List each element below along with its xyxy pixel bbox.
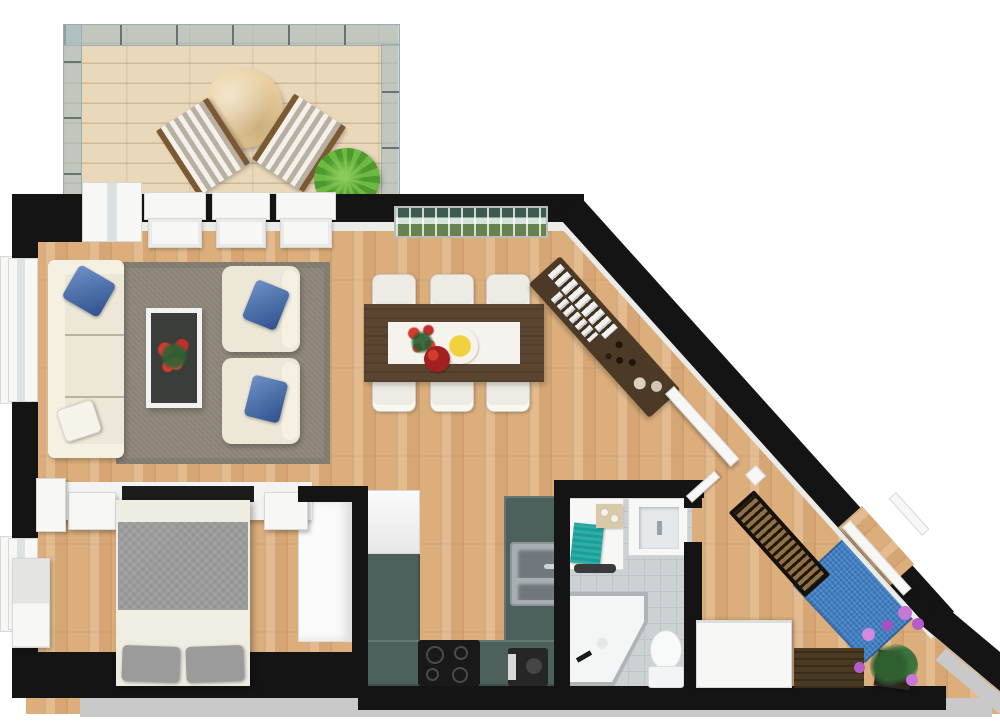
candle bbox=[610, 514, 619, 523]
orchid-bloom bbox=[862, 628, 875, 641]
shower-handle bbox=[576, 650, 592, 662]
orchid-bloom bbox=[912, 618, 924, 630]
patio-door bbox=[82, 182, 142, 242]
decor-knob bbox=[627, 358, 637, 368]
sofa-armrest-bottom bbox=[48, 444, 124, 458]
orchid-bloom bbox=[898, 606, 912, 620]
vanity-drawer-slot bbox=[574, 564, 616, 573]
burner bbox=[454, 646, 468, 660]
entry-door-frame bbox=[889, 492, 930, 536]
double-bed bbox=[116, 500, 250, 686]
window-deck-3-bay bbox=[280, 218, 332, 248]
burner bbox=[452, 667, 468, 683]
window-deck-2-bay bbox=[216, 218, 266, 248]
bath-washbasin-unit bbox=[628, 498, 688, 556]
basin-faucet bbox=[657, 521, 662, 535]
wall-bedroom-kitchen bbox=[352, 486, 368, 688]
bed-pillow-left bbox=[121, 645, 180, 683]
orchid-bloom bbox=[854, 662, 865, 673]
decor-bowl bbox=[631, 375, 648, 392]
bedroom-window-dresser bbox=[12, 558, 50, 648]
coffee-machine bbox=[508, 648, 548, 686]
deck-glass-railing-top bbox=[63, 24, 400, 46]
orchid-plant bbox=[852, 600, 936, 694]
window-left-1 bbox=[8, 258, 38, 402]
wall-bathroom-top bbox=[554, 480, 704, 498]
toilet-tank bbox=[648, 666, 684, 688]
window-deck-1 bbox=[144, 192, 206, 220]
window-sill-shelf bbox=[36, 478, 66, 532]
hall-sideboard bbox=[696, 620, 792, 688]
window-deck-3 bbox=[276, 192, 336, 220]
coffee-machine-top bbox=[526, 658, 542, 674]
bath-towel bbox=[570, 523, 604, 566]
decor-knob bbox=[615, 355, 625, 365]
burner bbox=[426, 668, 439, 681]
coffee-table-flowers bbox=[152, 330, 196, 382]
kitchen-tall-cabinet bbox=[362, 490, 420, 554]
wall-bedroom-stub bbox=[298, 486, 368, 502]
sink-basin-small bbox=[516, 582, 554, 600]
window-deck-2 bbox=[212, 192, 270, 220]
burner bbox=[426, 646, 444, 664]
bath-tray bbox=[596, 504, 622, 528]
bed-sheet-fold bbox=[118, 610, 248, 640]
bed-duvet bbox=[118, 522, 248, 610]
orchid-bloom bbox=[882, 620, 893, 631]
armchair-back bbox=[282, 362, 298, 440]
floating-shelf-left bbox=[68, 492, 116, 530]
decor-knob bbox=[604, 352, 612, 360]
floor-plan-canvas bbox=[0, 0, 1000, 721]
bed-pillow-right bbox=[185, 645, 244, 683]
wall-bathroom-left bbox=[554, 480, 570, 688]
armchair-back bbox=[282, 270, 298, 348]
candle bbox=[600, 508, 609, 517]
cooktop bbox=[418, 640, 480, 686]
wall-picture bbox=[394, 206, 548, 238]
window-deck-1-bay bbox=[148, 218, 202, 248]
coffee-machine-side bbox=[508, 654, 516, 680]
sink-basin-large bbox=[516, 548, 554, 578]
toilet-bowl bbox=[650, 630, 682, 670]
apple-bowl bbox=[424, 346, 450, 372]
orchid-bloom bbox=[906, 674, 918, 686]
decor-bowl bbox=[649, 379, 665, 395]
decor-knob bbox=[614, 340, 624, 350]
toilet bbox=[646, 630, 686, 690]
kitchen-sink bbox=[510, 542, 560, 606]
deck-glass-railing-right bbox=[381, 44, 400, 206]
